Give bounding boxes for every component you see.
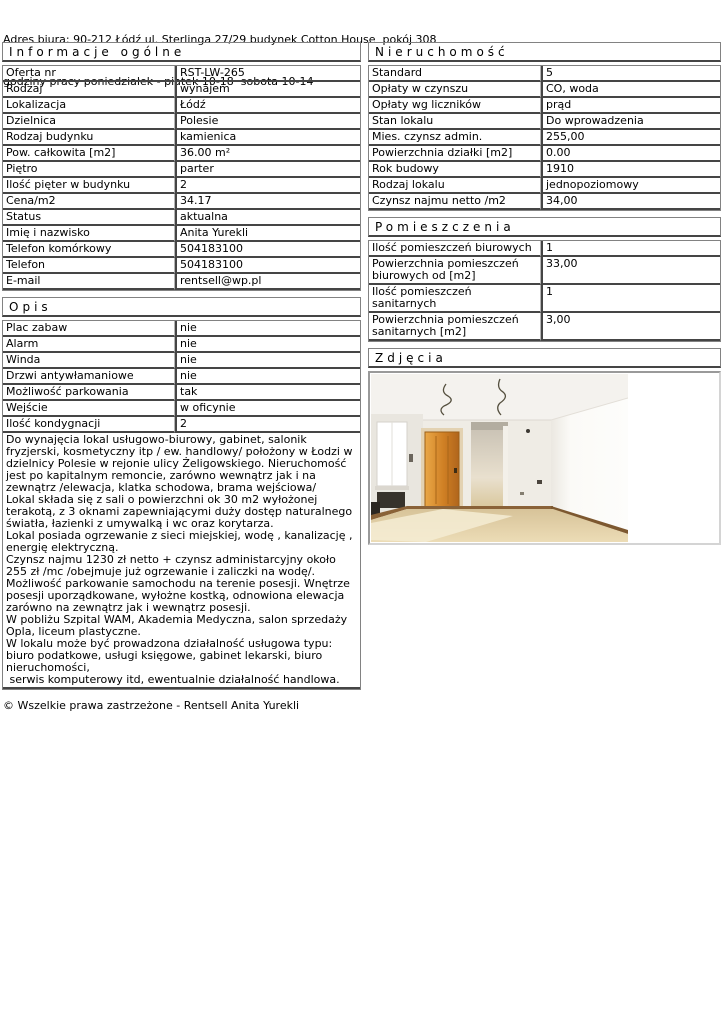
table-row: Rodzaj lokalujednopoziomowy	[369, 178, 720, 194]
wooden-door	[425, 432, 459, 508]
pomieszczenia-table: Ilość pomieszczeń biurowych1 Powierzchni…	[368, 240, 721, 342]
field-label: Alarm	[3, 337, 175, 353]
table-row: Powierzchnia pomieszczeń sanitarnych [m2…	[369, 313, 720, 341]
field-value: w oficynie	[175, 401, 360, 417]
table-row: Powierzchnia pomieszczeń biurowych od [m…	[369, 257, 720, 285]
wall-dot	[526, 429, 530, 433]
field-value: 34.17	[175, 194, 360, 210]
field-value: Anita Yurekli	[175, 226, 360, 242]
table-row: Rodzajwynajem	[3, 82, 360, 98]
table-row: Plac zabawnie	[3, 321, 360, 337]
field-value: kamienica	[175, 130, 360, 146]
table-row: Powierzchnia działki [m2]0.00	[369, 146, 720, 162]
listing-page: Adres biura: 90-212 Łódź ul. Sterlinga 2…	[0, 0, 724, 1024]
table-row: Do wynajęcia lokal usługowo-biurowy, gab…	[3, 433, 360, 689]
nieruchomosc-table: Standard5 Opłaty w czynszuCO, woda Opłat…	[368, 65, 721, 211]
table-row: Telefon504183100	[3, 258, 360, 274]
field-value: 1	[541, 285, 720, 313]
table-row: Imię i nazwiskoAnita Yurekli	[3, 226, 360, 242]
field-value: nie	[175, 369, 360, 385]
table-row: Statusaktualna	[3, 210, 360, 226]
field-label: Rodzaj lokalu	[369, 178, 541, 194]
section-header-pomieszczenia: Pomieszczenia	[368, 217, 721, 237]
field-label: Powierzchnia pomieszczeń biurowych od [m…	[369, 257, 541, 285]
radiator	[377, 492, 405, 508]
field-value: 2	[175, 178, 360, 194]
table-row: Stan lokaluDo wprowadzenia	[369, 114, 720, 130]
table-row: Rok budowy1910	[369, 162, 720, 178]
table-row: Ilość pomieszczeń biurowych1	[369, 241, 720, 257]
field-label: Pow. całkowita [m2]	[3, 146, 175, 162]
right-column: Nieruchomość Standard5 Opłaty w czynszuC…	[368, 42, 721, 545]
field-value: tak	[175, 385, 360, 401]
door-handle	[454, 468, 457, 473]
field-label: Powierzchnia działki [m2]	[369, 146, 541, 162]
field-value: wynajem	[175, 82, 360, 98]
field-label: Piętro	[3, 162, 175, 178]
field-label: Możliwość parkowania	[3, 385, 175, 401]
field-value: 255,00	[541, 130, 720, 146]
field-label: Cena/m2	[3, 194, 175, 210]
table-row: Mies. czynsz admin.255,00	[369, 130, 720, 146]
email-value: rentsell@wp.pl	[175, 274, 360, 290]
table-row: Oferta nrRST-LW-265	[3, 66, 360, 82]
section-header-nieruchomosc: Nieruchomość	[368, 42, 721, 62]
table-row: Telefon komórkowy504183100	[3, 242, 360, 258]
field-label: Ilość pomieszczeń biurowych	[369, 241, 541, 257]
baseboard	[407, 506, 553, 509]
field-label: Opłaty w czynszu	[369, 82, 541, 98]
field-value: parter	[175, 162, 360, 178]
field-value: prąd	[541, 98, 720, 114]
field-label: Powierzchnia pomieszczeń sanitarnych [m2…	[369, 313, 541, 341]
table-row: Cena/m234.17	[3, 194, 360, 210]
field-value: 5	[541, 66, 720, 82]
table-row: Rodzaj budynkukamienica	[3, 130, 360, 146]
field-value: 0.00	[541, 146, 720, 162]
field-value: aktualna	[175, 210, 360, 226]
table-row: Standard5	[369, 66, 720, 82]
field-label: Opłaty wg liczników	[369, 98, 541, 114]
field-label: Imię i nazwisko	[3, 226, 175, 242]
field-value: jednopoziomowy	[541, 178, 720, 194]
field-label: Telefon komórkowy	[3, 242, 175, 258]
table-row: Drzwi antywłamaniowenie	[3, 369, 360, 385]
table-row: Ilość kondygnacji2	[3, 417, 360, 433]
section-header-zdjecia: Zdjęcia	[368, 348, 721, 368]
table-row: Piętroparter	[3, 162, 360, 178]
socket	[537, 480, 542, 484]
table-row: Opłaty wg licznikówprąd	[369, 98, 720, 114]
field-label: Winda	[3, 353, 175, 369]
table-row: Ilość pięter w budynku2	[3, 178, 360, 194]
section-header-opis: Opis	[2, 297, 361, 317]
field-value: 1	[541, 241, 720, 257]
field-value: 33,00	[541, 257, 720, 285]
field-value: 504183100	[175, 242, 360, 258]
field-label: Drzwi antywłamaniowe	[3, 369, 175, 385]
section-header-informacje-ogolne: Informacje ogólne	[2, 42, 361, 62]
field-label: Ilość pomieszczeń sanitarnych	[369, 285, 541, 313]
field-value: nie	[175, 337, 360, 353]
table-row: Opłaty w czynszuCO, woda	[369, 82, 720, 98]
field-label: Plac zabaw	[3, 321, 175, 337]
field-label: Stan lokalu	[369, 114, 541, 130]
table-row: LokalizacjaŁódź	[3, 98, 360, 114]
field-value: 34,00	[541, 194, 720, 210]
field-value: 1910	[541, 162, 720, 178]
field-label: Telefon	[3, 258, 175, 274]
table-row: Windanie	[3, 353, 360, 369]
left-column: Informacje ogólne Oferta nrRST-LW-265 Ro…	[2, 42, 361, 712]
field-label: Dzielnica	[3, 114, 175, 130]
table-row: Alarmnie	[3, 337, 360, 353]
table-row: Pow. całkowita [m2]36.00 m²	[3, 146, 360, 162]
property-description: Do wynajęcia lokal usługowo-biurowy, gab…	[3, 433, 360, 689]
field-value: nie	[175, 353, 360, 369]
opis-table: Plac zabawnie Alarmnie Windanie Drzwi an…	[2, 320, 361, 690]
table-row: DzielnicaPolesie	[3, 114, 360, 130]
copyright-notice: © Wszelkie prawa zastrzeżone - Rentsell …	[2, 699, 361, 712]
field-label: Mies. czynsz admin.	[369, 130, 541, 146]
window-sill	[375, 486, 409, 490]
general-info-table: Oferta nrRST-LW-265 Rodzajwynajem Lokali…	[2, 65, 361, 291]
field-label: Ilość pięter w budynku	[3, 178, 175, 194]
field-value: CO, woda	[541, 82, 720, 98]
field-label: E-mail	[3, 274, 175, 290]
field-value: 2	[175, 417, 360, 433]
table-row: Czynsz najmu netto /m234,00	[369, 194, 720, 210]
field-value: 3,00	[541, 313, 720, 341]
field-label: Status	[3, 210, 175, 226]
field-value: 36.00 m²	[175, 146, 360, 162]
table-row: Ilość pomieszczeń sanitarnych1	[369, 285, 720, 313]
table-row: Możliwość parkowaniatak	[3, 385, 360, 401]
field-label: Wejście	[3, 401, 175, 417]
property-photo	[371, 374, 628, 542]
table-row: E-mailrentsell@wp.pl	[3, 274, 360, 290]
field-label: Czynsz najmu netto /m2	[369, 194, 541, 210]
field-label: Lokalizacja	[3, 98, 175, 114]
intercom	[409, 454, 413, 462]
field-label: Rok budowy	[369, 162, 541, 178]
field-label: Rodzaj	[3, 82, 175, 98]
field-value: Łódź	[175, 98, 360, 114]
table-row: Wejściew oficynie	[3, 401, 360, 417]
field-value: 504183100	[175, 258, 360, 274]
photo-frame	[368, 371, 721, 545]
field-label: Standard	[369, 66, 541, 82]
field-label: Rodzaj budynku	[3, 130, 175, 146]
socket	[520, 492, 524, 495]
field-value: RST-LW-265	[175, 66, 360, 82]
field-value: nie	[175, 321, 360, 337]
field-value: Do wprowadzenia	[541, 114, 720, 130]
field-label: Oferta nr	[3, 66, 175, 82]
doorway-opening	[471, 422, 508, 508]
field-label: Ilość kondygnacji	[3, 417, 175, 433]
field-value: Polesie	[175, 114, 360, 130]
